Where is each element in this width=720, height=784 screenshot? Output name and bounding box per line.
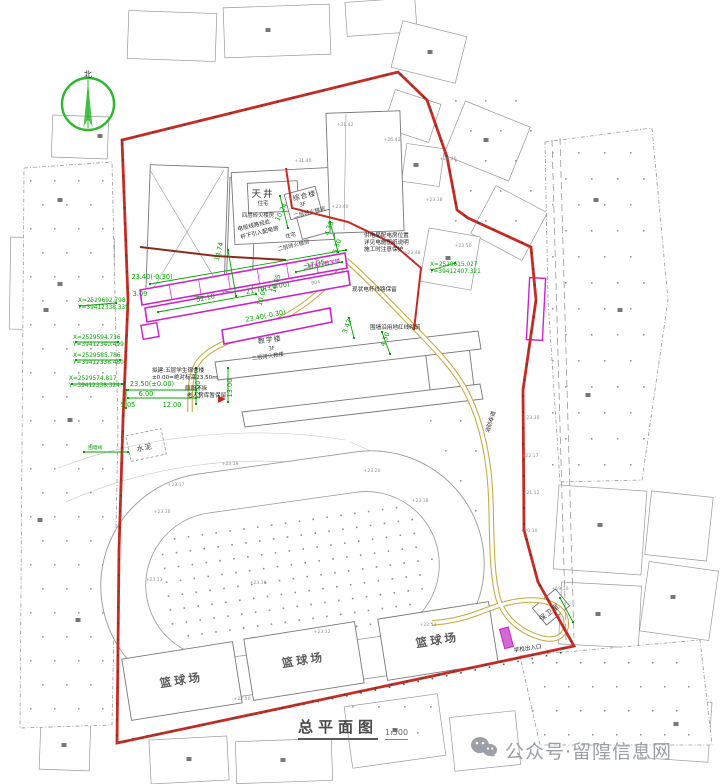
grass-dot: [245, 542, 247, 544]
annotation-coord: X=2529574.817: [69, 376, 117, 382]
boundary-dot: [435, 125, 437, 127]
boundary-dot: [118, 591, 120, 593]
parcel-house-glyph: [62, 743, 67, 747]
grass-dot: [326, 615, 328, 617]
veg-dot: [640, 686, 642, 688]
fence-dot: [389, 686, 391, 688]
veg-dot: [90, 588, 92, 590]
boundary-dot: [292, 97, 294, 99]
veg-dot: [604, 464, 606, 466]
parcel-house-glyph: [598, 523, 603, 527]
parcel-strip: [520, 640, 712, 745]
grass-dot: [166, 581, 168, 583]
veg-dot: [515, 100, 517, 102]
annotation-note: ±0.00=绝对标高23.50m: [152, 373, 218, 381]
annotation-gray: +19.10: [551, 586, 568, 592]
boundary-dot: [261, 105, 263, 107]
boundary-dot: [400, 74, 402, 76]
grass-dot: [183, 607, 185, 609]
veg-dot: [617, 282, 619, 284]
parcel-house-glyph: [187, 757, 192, 761]
boundary-dot: [116, 735, 118, 737]
veg-dot: [580, 710, 582, 712]
fence-dot: [489, 666, 491, 668]
grass-dot: [205, 562, 207, 564]
annotation-coord: Y=39412338.335: [77, 305, 129, 311]
veg-dot: [475, 510, 477, 512]
parcel: [553, 485, 647, 575]
grass-dot: [370, 524, 372, 526]
grass-dot: [284, 621, 286, 623]
veg-dot: [664, 686, 666, 688]
veg-dot: [90, 492, 92, 494]
boundary-dot: [171, 730, 173, 732]
veg-dot: [352, 706, 354, 708]
veg-dot: [66, 684, 68, 686]
dim-end: [227, 401, 229, 403]
grass-dot: [211, 603, 213, 605]
grass-dot: [162, 554, 164, 556]
veg-dot: [485, 220, 487, 222]
veg-dot: [485, 100, 487, 102]
boundary-dot: [118, 543, 120, 545]
grass-dot: [314, 532, 316, 534]
boundary-dot: [245, 108, 247, 110]
grass-dot: [269, 609, 271, 611]
veg-dot: [90, 204, 92, 206]
annotation-note: 老人房库暂保留: [187, 391, 227, 399]
annotation-note: 详见电施图纸说明: [364, 238, 409, 246]
boundary-dot: [199, 120, 201, 122]
veg-dot: [617, 230, 619, 232]
veg-dot: [66, 300, 68, 302]
veg-dot: [604, 412, 606, 414]
boundary-dot: [440, 140, 442, 142]
fence-dot: [446, 675, 448, 677]
annotation-dim: 12.00: [163, 401, 182, 409]
annotation-coord: Y=39412338.480: [72, 360, 124, 366]
veg-dot: [617, 386, 619, 388]
boundary-dot: [297, 704, 299, 706]
veg-dot: [42, 444, 44, 446]
veg-dot: [592, 686, 594, 688]
grass-dot: [237, 586, 239, 588]
parcel: [127, 10, 217, 61]
fence-dot: [289, 706, 291, 708]
boundary-dot: [535, 300, 537, 302]
veg-dot: [578, 360, 580, 362]
boundary-dot: [152, 131, 154, 133]
veg-dot: [90, 348, 92, 350]
grass-dot: [306, 576, 308, 578]
veg-dot: [530, 190, 532, 192]
fence-dot: [403, 684, 405, 686]
grass-dot: [233, 558, 235, 560]
grass-dot: [374, 552, 376, 554]
boundary-dot: [117, 703, 119, 705]
veg-dot: [628, 710, 630, 712]
boundary-dot: [521, 242, 523, 244]
veg-dot: [30, 228, 32, 230]
boundary-dot: [370, 78, 372, 80]
veg-dot: [102, 372, 104, 374]
grass-dot: [217, 546, 219, 548]
veg-dot: [30, 420, 32, 422]
parcel: [402, 144, 445, 187]
annotation-gray: +23.19: [221, 461, 238, 467]
veg-dot: [676, 710, 678, 712]
veg-dot: [565, 438, 567, 440]
grass-dot: [298, 520, 300, 522]
grass-dot: [176, 552, 178, 554]
veg-dot: [630, 152, 632, 154]
grass-dot: [271, 623, 273, 625]
veg-dot: [78, 420, 80, 422]
boundary-dot: [532, 268, 534, 270]
fence-dot: [432, 678, 434, 680]
veg-dot: [578, 204, 580, 206]
grass-dot: [292, 578, 294, 580]
veg-dot: [591, 386, 593, 388]
veg-dot: [54, 276, 56, 278]
boundary-dot: [214, 116, 216, 118]
veg-dot: [643, 230, 645, 232]
parcel-house-glyph: [44, 308, 49, 312]
boundary-dot: [140, 737, 142, 739]
boundary-dot: [437, 674, 439, 676]
boundary-dot: [522, 443, 524, 445]
parcel-strip: [20, 162, 118, 728]
annotation-bldg: 天井: [251, 188, 274, 200]
veg-dot: [66, 588, 68, 590]
grass-dot: [223, 587, 225, 589]
annotation-dim: 5.05: [121, 401, 136, 409]
grass-dot: [239, 599, 241, 601]
boundary-dot: [126, 335, 128, 337]
boundary-dot: [531, 654, 533, 656]
veg-dot: [556, 710, 558, 712]
boundary-dot: [117, 655, 119, 657]
annotation-note: 围墙沿用地红线砌筑: [370, 323, 421, 331]
annotation-gray: +23.16: [153, 509, 170, 515]
veg-dot: [404, 706, 406, 708]
grass-dot: [174, 538, 176, 540]
boundary-dot: [530, 554, 532, 556]
grass-dot: [199, 619, 201, 621]
grass-dot: [225, 601, 227, 603]
annotation-gray: +23.40: [331, 204, 348, 210]
veg-dot: [66, 348, 68, 350]
veg-dot: [643, 282, 645, 284]
grass-dot: [227, 615, 229, 617]
boundary-dot: [121, 139, 123, 141]
grass-dot: [235, 572, 237, 574]
grass-dot: [354, 612, 356, 614]
grass-dot: [310, 604, 312, 606]
grass-dot: [397, 521, 399, 523]
grass-dot: [370, 623, 372, 625]
parcel-house-glyph: [38, 518, 43, 522]
veg-dot: [430, 420, 432, 422]
grass-dot: [362, 568, 364, 570]
dim-end: [127, 397, 129, 399]
grass-dot: [405, 576, 407, 578]
veg-dot: [630, 204, 632, 206]
annotation-gray: +26.42: [383, 137, 400, 143]
parcel-house-glyph: [596, 612, 601, 616]
annotation-bldg2: 水泥: [136, 441, 154, 453]
veg-dot: [78, 612, 80, 614]
fence-dot: [218, 721, 220, 723]
grass-dot: [273, 538, 275, 540]
boundary-dot: [500, 661, 502, 663]
grass-dot: [403, 562, 405, 564]
veg-dot: [470, 130, 472, 132]
veg-dot: [445, 450, 447, 452]
drawing-scale: 1:500: [385, 728, 408, 740]
dim-end: [287, 227, 289, 229]
grass-dot: [277, 566, 279, 568]
boundary-dot: [122, 175, 124, 177]
veg-dot: [604, 152, 606, 154]
veg-dot: [604, 360, 606, 362]
veg-dot: [688, 686, 690, 688]
boundary-dot: [463, 214, 465, 216]
boundary-dot: [547, 651, 549, 653]
annotation-coord: X=2529585.786: [73, 353, 121, 359]
fence-dot: [517, 661, 519, 663]
veg-dot: [591, 334, 593, 336]
grass-dot: [344, 542, 346, 544]
annotation-note: 施工时注意保护: [364, 245, 404, 253]
grass-dot: [170, 609, 172, 611]
veg-dot: [378, 706, 380, 708]
boundary-dot: [539, 585, 541, 587]
drawing-title: 总平面图 1:500: [298, 716, 408, 740]
grass-dot: [379, 594, 381, 596]
grass-dot: [338, 600, 340, 602]
fence-dot: [375, 689, 377, 691]
boundary-dot: [121, 143, 123, 145]
grass-dot: [267, 596, 269, 598]
grass-dot: [399, 534, 401, 536]
dim-end: [559, 597, 561, 599]
grass-dot: [378, 580, 380, 582]
boundary-dot: [533, 316, 535, 318]
annotation-note: 拟建:五层学生宿舍楼: [152, 366, 205, 374]
dim-end: [195, 403, 197, 405]
annotation-gray: +23.18: [411, 498, 428, 504]
veg-dot: [500, 130, 502, 132]
fence-dot: [146, 735, 148, 737]
veg-dot: [565, 282, 567, 284]
grass-dot: [348, 570, 350, 572]
veg-dot: [102, 660, 104, 662]
veg-dot: [552, 204, 554, 206]
boundary-dot: [156, 734, 158, 736]
veg-dot: [591, 230, 593, 232]
dim-end: [227, 249, 229, 251]
veg-dot: [652, 710, 654, 712]
veg-dot: [485, 160, 487, 162]
veg-dot: [604, 662, 606, 664]
boundary-dot: [526, 363, 528, 365]
grass-dot: [191, 564, 193, 566]
annotation-gray: +23.13: [145, 577, 162, 583]
veg-dot: [552, 412, 554, 414]
veg-dot: [54, 420, 56, 422]
annotation-gray: +31.40: [294, 158, 311, 164]
boundary-dot: [118, 575, 120, 577]
boundary-dot: [119, 511, 121, 513]
grass-dot: [421, 588, 423, 590]
veg-dot: [54, 180, 56, 182]
grass-dot: [342, 528, 344, 530]
boundary-dot: [563, 647, 565, 649]
veg-dot: [78, 276, 80, 278]
boundary-dot: [328, 697, 330, 699]
boundary-dot: [453, 671, 455, 673]
veg-dot: [66, 540, 68, 542]
veg-dot: [102, 276, 104, 278]
veg-dot: [617, 178, 619, 180]
dim-end: [149, 283, 151, 285]
grass-dot: [308, 590, 310, 592]
grass-dot: [330, 544, 332, 546]
boundary-dot: [127, 287, 129, 289]
grass-dot: [271, 524, 273, 526]
grass-dot: [326, 516, 328, 518]
veg-dot: [544, 686, 546, 688]
veg-dot: [90, 636, 92, 638]
veg-dot: [532, 710, 534, 712]
parcel-house-glyph: [446, 256, 451, 260]
boundary-dot: [524, 379, 526, 381]
grass-dot: [287, 536, 289, 538]
grass-dot: [316, 546, 318, 548]
veg-dot: [628, 662, 630, 664]
boundary-dot: [121, 463, 123, 465]
annotation-bsub: 3F: [268, 346, 275, 353]
veg-dot: [54, 564, 56, 566]
grass-dot: [389, 564, 391, 566]
grass-dot: [197, 605, 199, 607]
grass-dot: [168, 595, 170, 597]
dim-end: [121, 383, 123, 385]
veg-dot: [578, 464, 580, 466]
fence-dot: [232, 718, 234, 720]
parcel-house-glyph: [266, 28, 271, 32]
veg-dot: [30, 564, 32, 566]
grass-dot: [275, 552, 277, 554]
boundary-dot: [523, 507, 525, 509]
building-outline: [326, 111, 404, 234]
veg-dot: [30, 324, 32, 326]
dim-end: [127, 451, 129, 453]
grass-dot: [302, 548, 304, 550]
veg-dot: [604, 710, 606, 712]
grass-dot: [282, 607, 284, 609]
veg-dot: [78, 564, 80, 566]
annotation-gray: +31.42: [336, 122, 353, 128]
boundary-dot: [122, 415, 124, 417]
boundary-dot: [120, 495, 122, 497]
veg-dot: [102, 516, 104, 518]
parcel-house-glyph: [674, 722, 679, 726]
veg-dot: [42, 252, 44, 254]
grass-dot: [350, 584, 352, 586]
grass-dot: [336, 586, 338, 588]
veg-dot: [604, 204, 606, 206]
grass-dot: [384, 523, 386, 525]
annotation-dim: 6.00: [139, 390, 154, 398]
north-compass: 北: [62, 70, 114, 130]
boundary-dot: [122, 159, 124, 161]
fence-dot: [460, 672, 462, 674]
grass-dot: [193, 578, 195, 580]
annotation-note: 供电局配电房位置: [364, 231, 409, 239]
boundary-dot: [534, 570, 536, 572]
fence-dot: [531, 658, 533, 660]
veg-dot: [102, 228, 104, 230]
veg-dot: [102, 324, 104, 326]
parcel-house-glyph: [76, 618, 81, 622]
boundary-dot: [507, 235, 509, 237]
grass-dot: [388, 550, 390, 552]
watermark: 公众号·留隍信息网: [470, 735, 672, 765]
parcel-house-glyph: [586, 393, 591, 397]
veg-dot: [652, 662, 654, 664]
annotation-gray: +26.46: [439, 156, 456, 162]
boundary-dot: [375, 687, 377, 689]
boundary-dot: [406, 681, 408, 683]
boundary-dot: [522, 395, 524, 397]
boundary-dot: [125, 351, 127, 353]
veg-dot: [78, 660, 80, 662]
veg-dot: [604, 256, 606, 258]
boundary-dot: [530, 332, 532, 334]
dim-end: [389, 353, 391, 355]
boundary-dot: [122, 431, 124, 433]
grass-dot: [279, 580, 281, 582]
boundary-dot: [323, 89, 325, 91]
veg-dot: [643, 334, 645, 336]
boundary-dot: [117, 623, 119, 625]
veg-dot: [515, 220, 517, 222]
parcel-strip: [545, 128, 668, 482]
grass-dot: [290, 564, 292, 566]
fence-dot: [132, 738, 134, 740]
grass-dot: [304, 562, 306, 564]
annotation-dim: 23.40(-0.30): [131, 273, 172, 281]
grass-dot: [415, 546, 417, 548]
annotation-coord: X=2529594.716: [73, 335, 121, 341]
grass-dot: [356, 526, 358, 528]
annotation-note: 学校出入口: [513, 642, 542, 654]
fence-dot: [161, 732, 163, 734]
grass-dot: [298, 619, 300, 621]
veg-dot: [42, 492, 44, 494]
boundary-dot: [118, 559, 120, 561]
fence-dot: [346, 695, 348, 697]
boundary-dot: [526, 539, 528, 541]
dim-end: [235, 295, 237, 297]
veg-dot: [604, 308, 606, 310]
annotation-coord: Y=39412338.324: [68, 383, 120, 389]
grass-dot: [215, 532, 217, 534]
boundary-dot: [118, 607, 120, 609]
boundary-dot: [522, 411, 524, 413]
